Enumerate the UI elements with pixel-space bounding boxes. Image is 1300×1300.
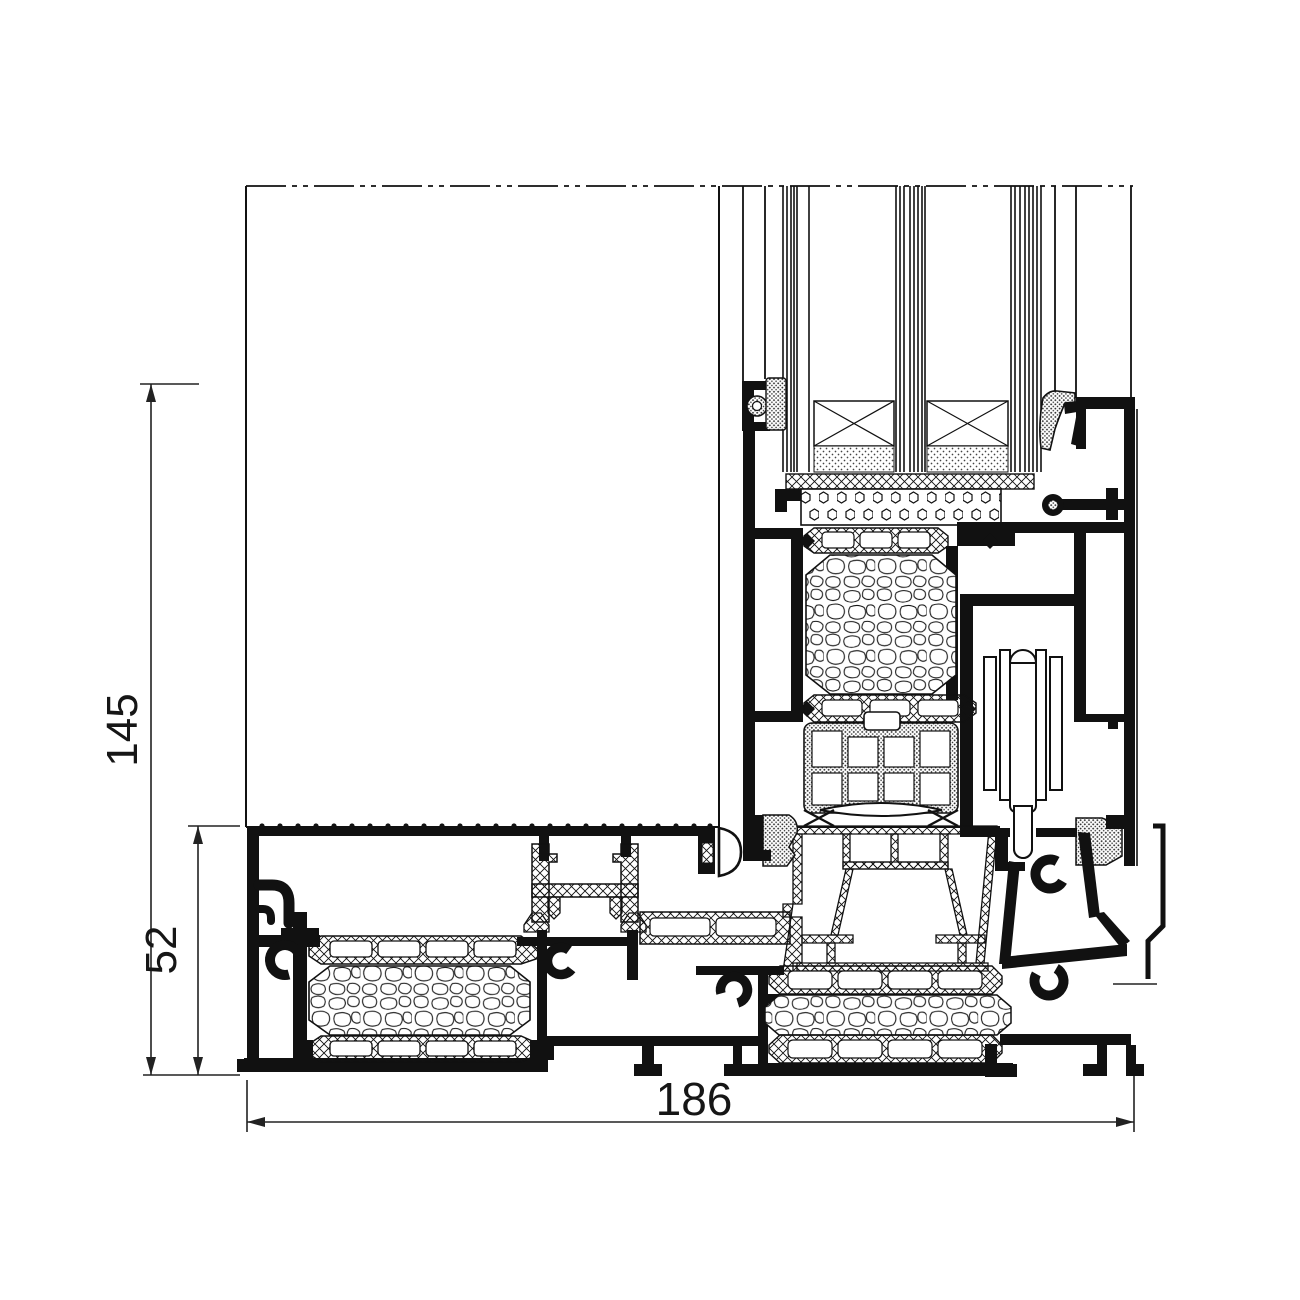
svg-text:52: 52 (137, 926, 186, 975)
svg-text:145: 145 (98, 693, 147, 766)
svg-text:186: 186 (656, 1073, 733, 1125)
